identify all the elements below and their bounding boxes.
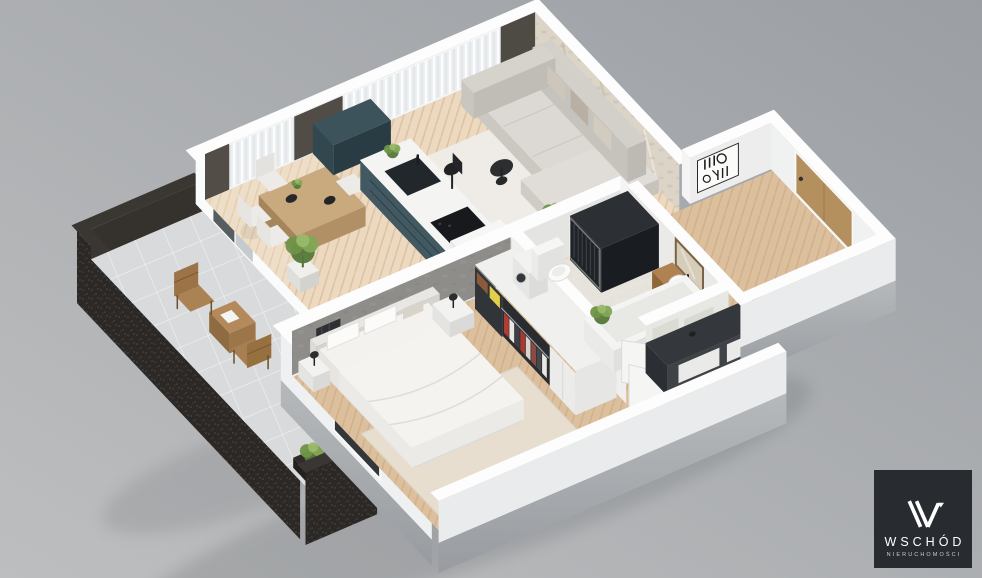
door-handle xyxy=(799,177,803,181)
floorplan-3d-render: WSCHÓD NIERUCHOMOŚCI xyxy=(0,0,982,578)
logo-title: WSCHÓD xyxy=(881,535,966,549)
logo-subtitle: NIERUCHOMOŚCI xyxy=(885,552,962,558)
brand-logo-watermark: WSCHÓD NIERUCHOMOŚCI xyxy=(874,470,972,568)
logo-w-icon xyxy=(902,499,944,529)
apartment-floorplan-scene xyxy=(0,0,982,578)
